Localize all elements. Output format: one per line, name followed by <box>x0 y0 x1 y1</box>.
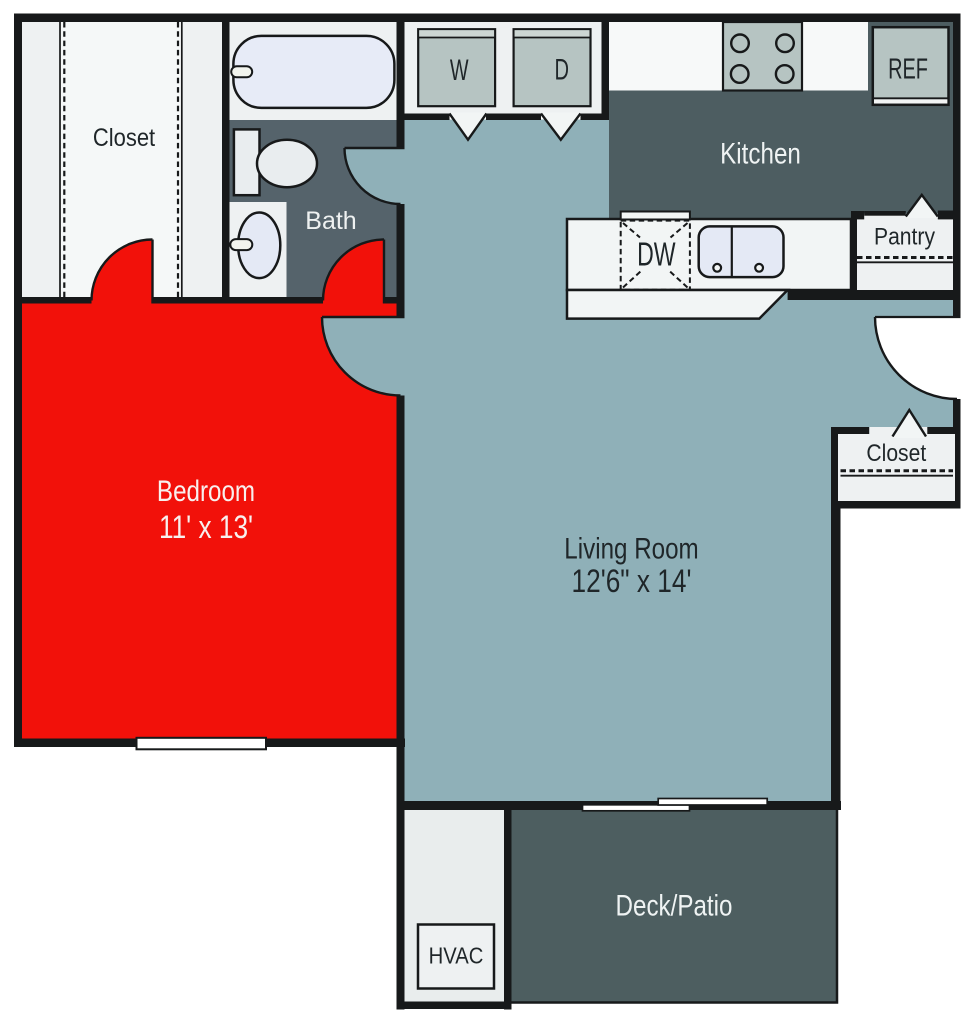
svg-text:W: W <box>450 54 469 87</box>
svg-text:Closet: Closet <box>866 440 927 467</box>
svg-text:REF: REF <box>888 54 928 85</box>
svg-text:Pantry: Pantry <box>874 223 936 250</box>
svg-text:Bath: Bath <box>305 207 356 235</box>
svg-text:D: D <box>555 54 569 87</box>
svg-text:Deck/Patio: Deck/Patio <box>616 889 733 922</box>
svg-text:Living Room: Living Room <box>564 532 698 565</box>
svg-text:HVAC: HVAC <box>429 942 484 969</box>
svg-text:Closet: Closet <box>93 124 156 152</box>
svg-text:11' x 13': 11' x 13' <box>159 511 253 546</box>
svg-text:Bedroom: Bedroom <box>157 475 255 508</box>
svg-text:12'6" x 14': 12'6" x 14' <box>572 565 692 600</box>
svg-text:DW: DW <box>637 236 676 273</box>
svg-text:Kitchen: Kitchen <box>720 137 801 170</box>
